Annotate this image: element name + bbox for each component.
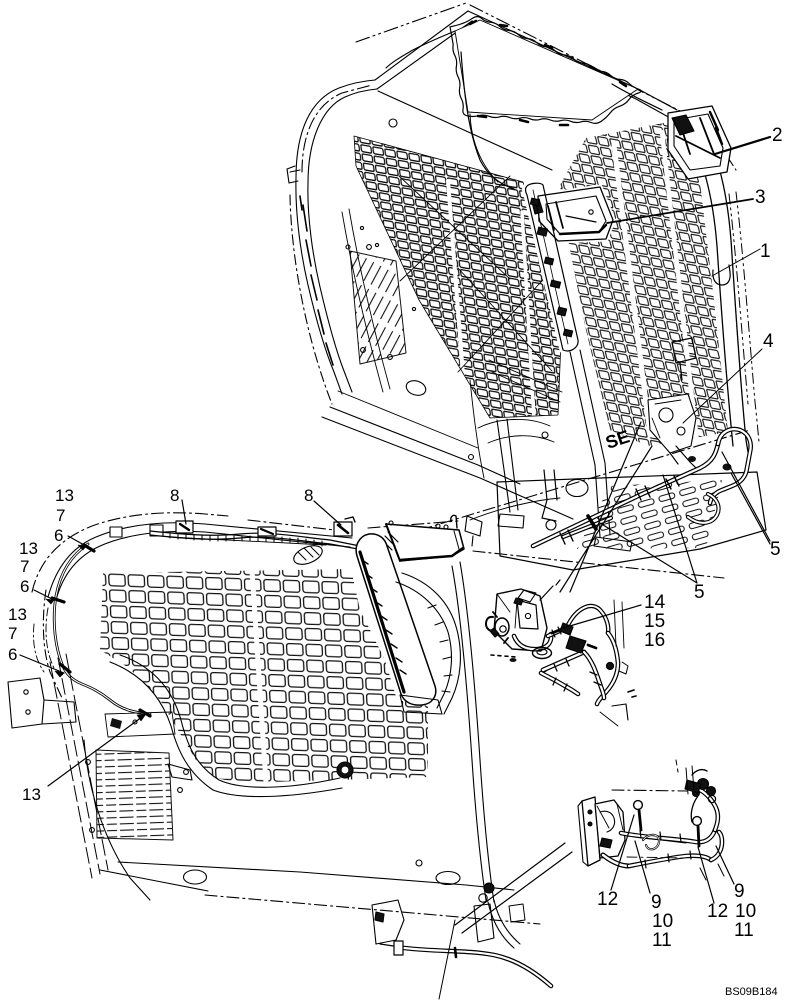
svg-text:13: 13 (22, 785, 41, 804)
svg-text:7: 7 (20, 557, 29, 576)
svg-text:9: 9 (651, 892, 662, 913)
svg-text:11: 11 (652, 930, 672, 951)
svg-text:13: 13 (55, 486, 74, 505)
svg-text:12: 12 (597, 889, 618, 910)
svg-text:10: 10 (652, 911, 673, 932)
svg-text:5: 5 (770, 539, 781, 560)
svg-text:9: 9 (734, 881, 745, 902)
svg-text:6: 6 (20, 577, 29, 596)
svg-text:13: 13 (8, 605, 27, 624)
svg-text:13: 13 (19, 539, 38, 558)
svg-text:15: 15 (644, 611, 665, 632)
svg-text:2: 2 (772, 125, 783, 146)
svg-text:10: 10 (735, 901, 756, 922)
svg-text:7: 7 (8, 624, 17, 643)
svg-text:3: 3 (755, 187, 766, 208)
svg-text:16: 16 (644, 630, 665, 651)
svg-text:5: 5 (694, 582, 705, 603)
svg-text:11: 11 (734, 920, 754, 941)
svg-text:14: 14 (644, 592, 666, 613)
svg-text:7: 7 (56, 506, 65, 525)
svg-text:12: 12 (707, 901, 728, 922)
svg-text:6: 6 (54, 526, 63, 545)
svg-text:6: 6 (8, 645, 17, 664)
svg-text:1: 1 (760, 241, 771, 262)
svg-text:8: 8 (170, 486, 179, 505)
svg-text:4: 4 (763, 331, 774, 352)
svg-text:8: 8 (304, 486, 313, 505)
svg-text:BS09B184: BS09B184 (725, 986, 778, 998)
